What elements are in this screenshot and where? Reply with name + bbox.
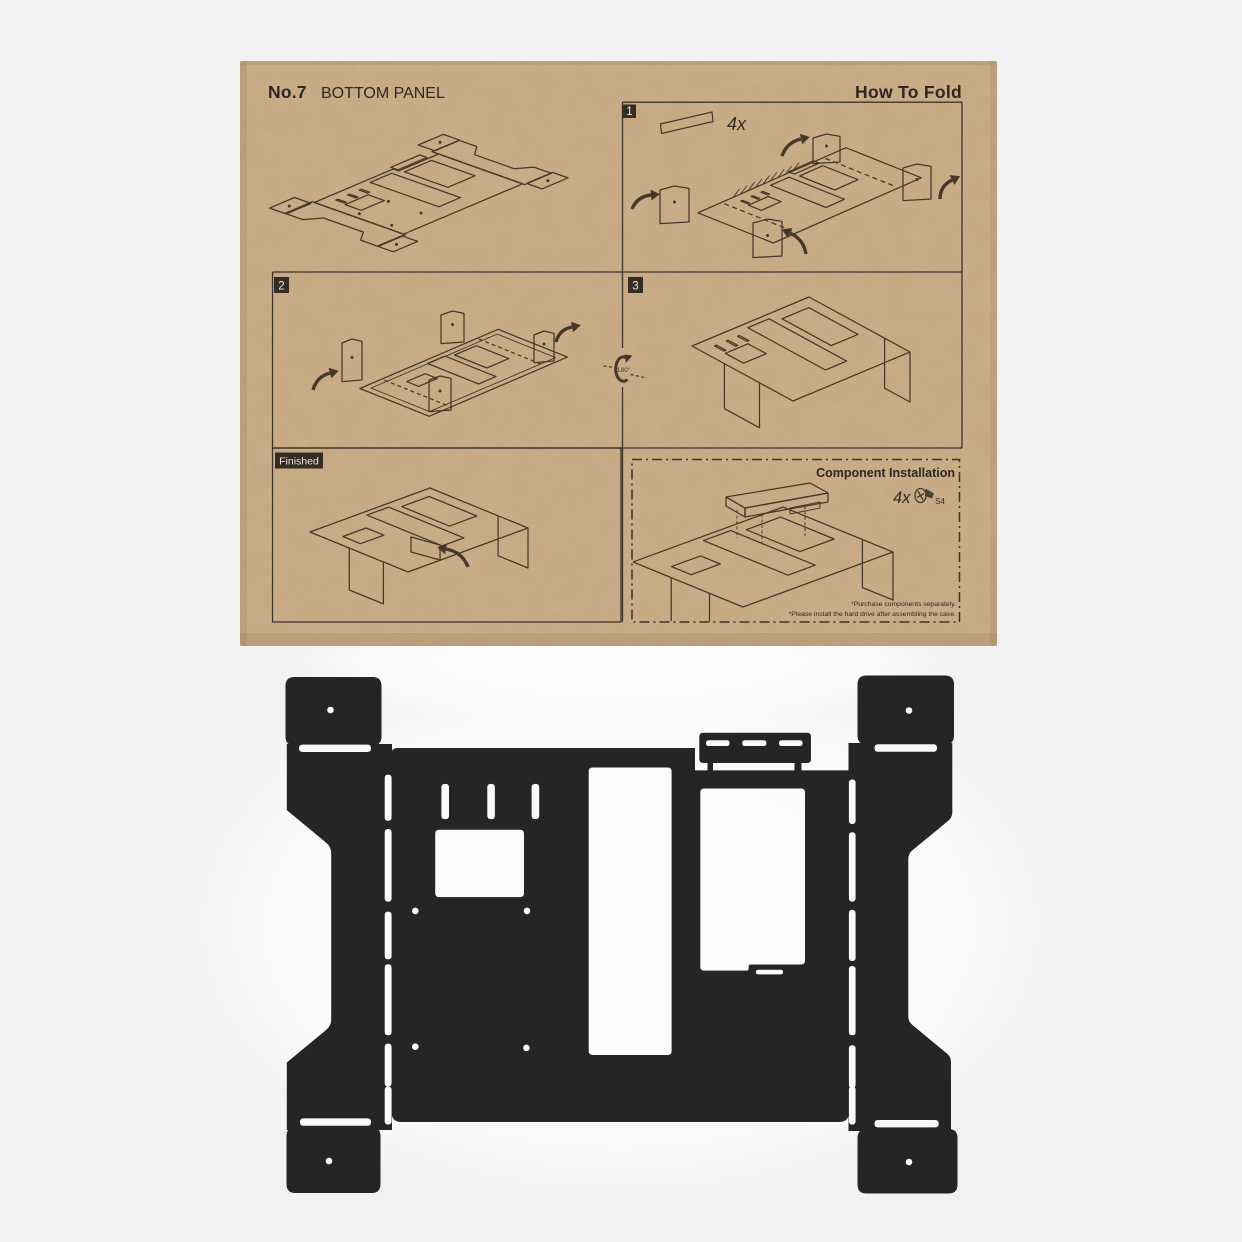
svg-text:1: 1 <box>626 106 632 118</box>
svg-text:Component Installation: Component Installation <box>816 466 955 480</box>
svg-text:4x: 4x <box>893 489 911 507</box>
svg-text:No.7: No.7 <box>268 82 307 102</box>
svg-text:BOTTOM PANEL: BOTTOM PANEL <box>321 85 445 102</box>
svg-text:2: 2 <box>278 281 284 293</box>
svg-text:180°: 180° <box>617 366 631 374</box>
svg-text:4x: 4x <box>727 114 747 134</box>
svg-text:*Please install the hard drive: *Please install the hard drive after ass… <box>789 611 956 618</box>
svg-text:3: 3 <box>632 281 638 293</box>
svg-text:*Purchase components separatel: *Purchase components separately. <box>851 601 956 608</box>
svg-text:S4: S4 <box>935 497 945 506</box>
svg-text:How To Fold: How To Fold <box>855 82 962 102</box>
svg-text:Finished: Finished <box>279 456 319 468</box>
